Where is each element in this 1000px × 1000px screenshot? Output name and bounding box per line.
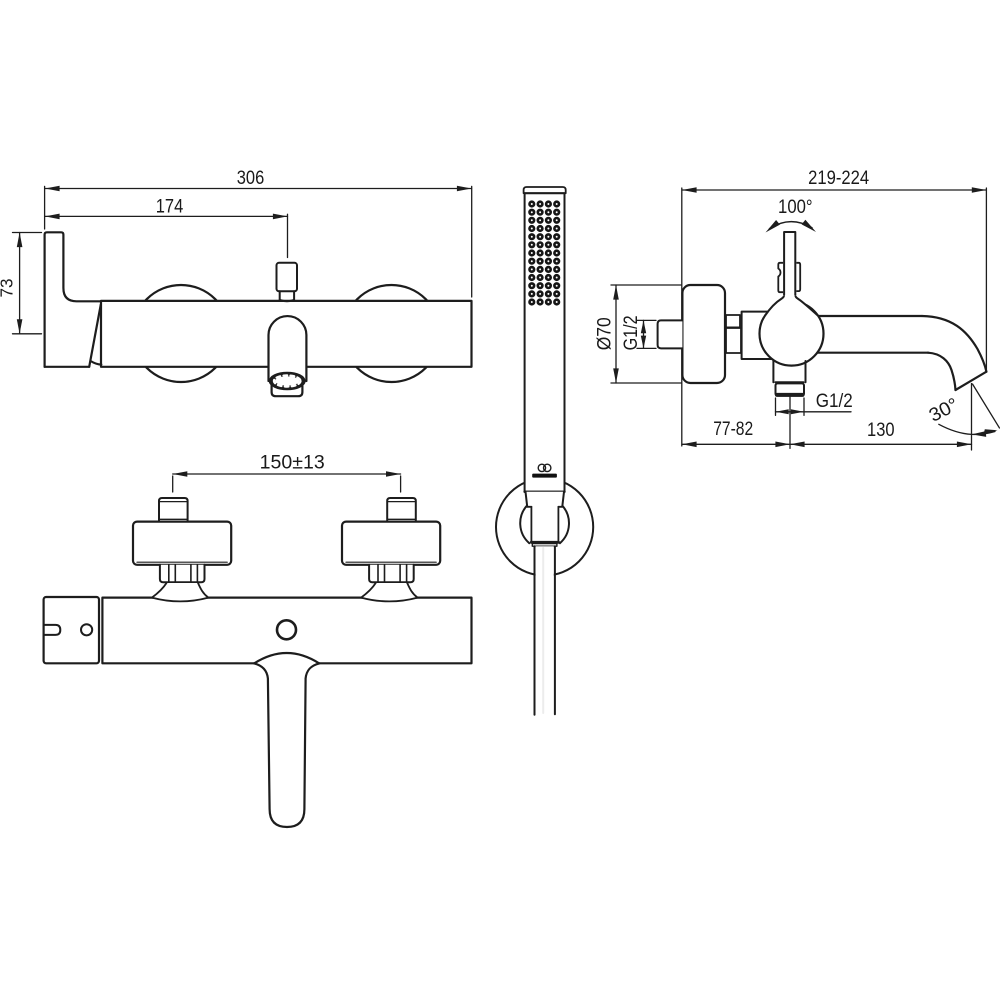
svg-text:73: 73 (0, 279, 17, 298)
svg-text:Ø70: Ø70 (594, 317, 615, 350)
svg-text:G1/2: G1/2 (621, 315, 642, 350)
svg-text:G1/2: G1/2 (816, 391, 853, 412)
svg-text:77-82: 77-82 (713, 419, 753, 440)
svg-text:306: 306 (237, 168, 265, 189)
svg-text:100°: 100° (778, 197, 813, 218)
svg-text:150±13: 150±13 (260, 452, 325, 473)
svg-text:130: 130 (867, 420, 895, 441)
svg-text:174: 174 (156, 196, 184, 217)
svg-text:219-224: 219-224 (808, 168, 869, 189)
